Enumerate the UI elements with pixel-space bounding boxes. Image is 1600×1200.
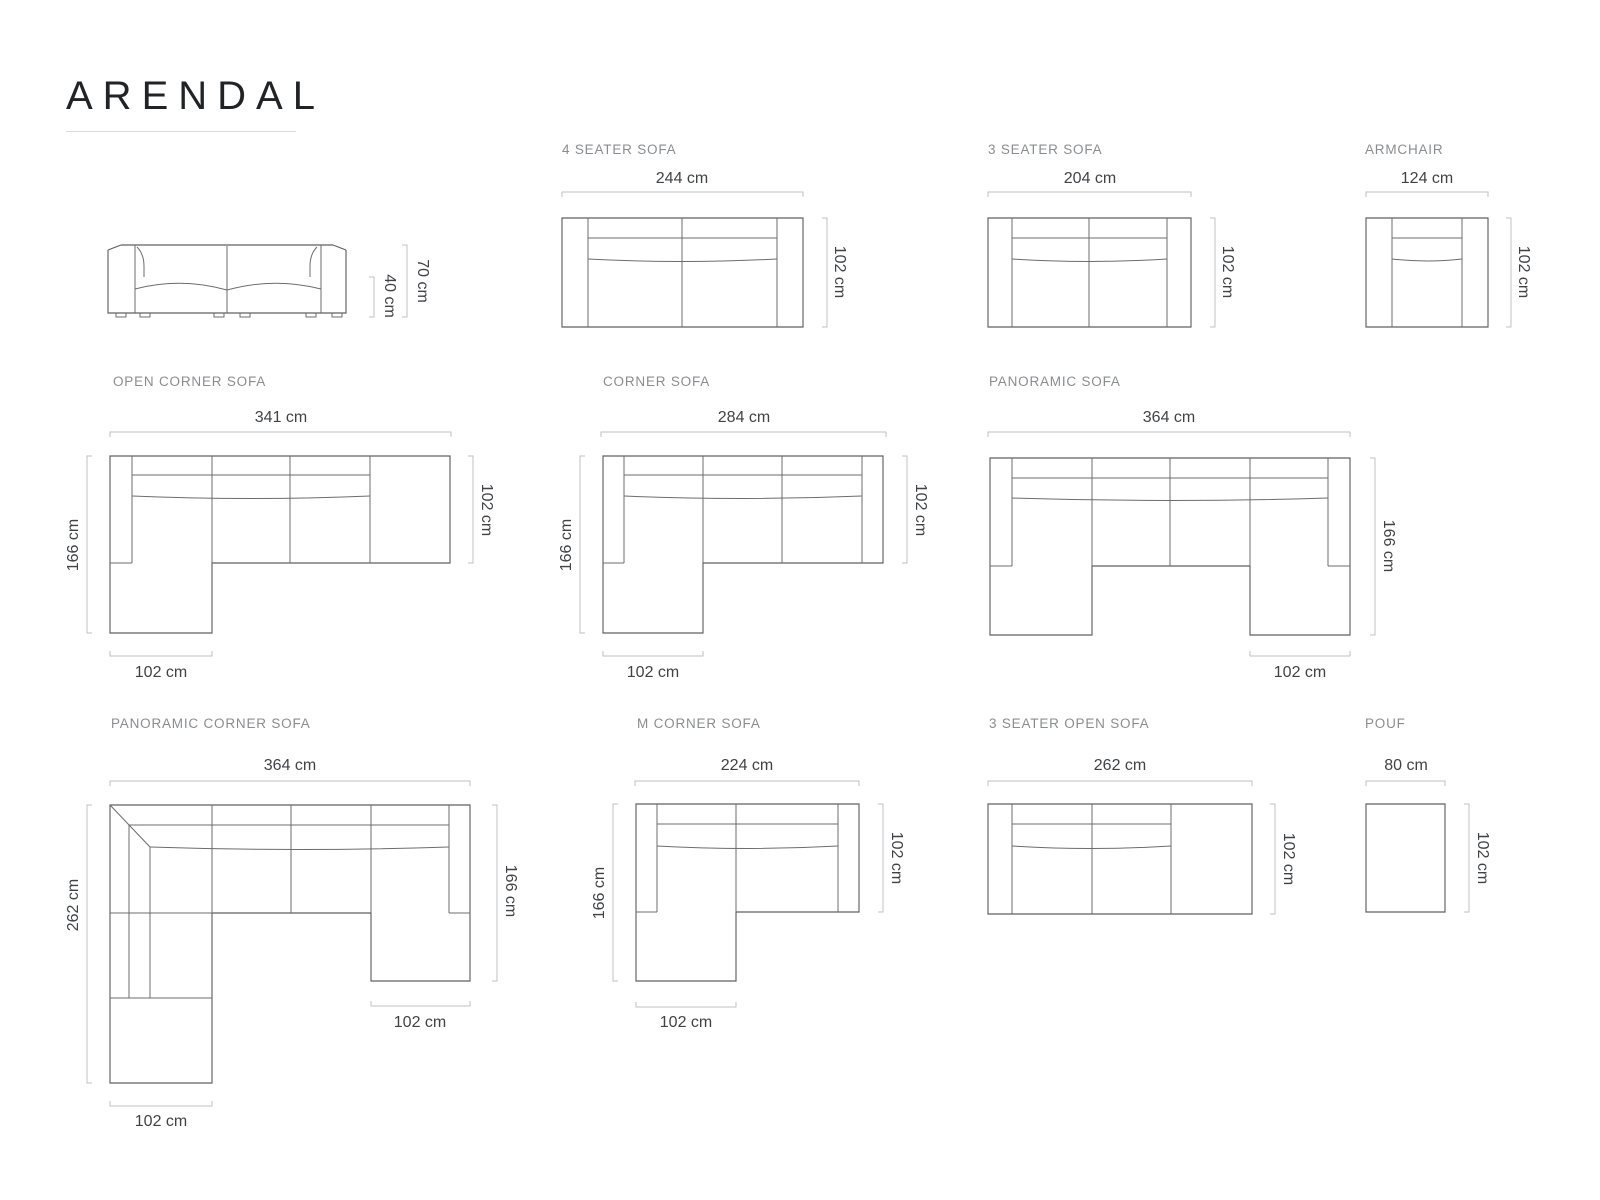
corner-depth: 102 cm: [911, 484, 929, 536]
m-corner-label: M CORNER SOFA: [637, 716, 761, 731]
three-seater-open-label: 3 SEATER OPEN SOFA: [989, 716, 1149, 731]
m-corner-chaise-width: 102 cm: [660, 1014, 712, 1032]
armchair-depth: 102 cm: [1514, 246, 1532, 298]
m-corner-depth: 102 cm: [887, 832, 905, 884]
panoramic-corner-chaise-bottom: 102 cm: [135, 1113, 187, 1131]
three-seater-depth: 102 cm: [1218, 246, 1236, 298]
corner-label: CORNER SOFA: [603, 374, 710, 389]
panoramic-corner-right-length: 166 cm: [501, 865, 519, 917]
side-view-seat-height: 40 cm: [380, 274, 398, 318]
four-seater-depth: 102 cm: [830, 246, 848, 298]
open-corner-width: 341 cm: [255, 409, 307, 427]
armchair-drawing: [1366, 192, 1511, 327]
panoramic-label: PANORAMIC SOFA: [989, 374, 1121, 389]
open-corner-length: 166 cm: [65, 519, 83, 571]
open-corner-drawing: [87, 432, 473, 656]
armchair-width: 124 cm: [1401, 170, 1453, 188]
m-corner-drawing: [613, 781, 883, 1007]
panoramic-corner-left-length: 262 cm: [65, 879, 83, 931]
panoramic-corner-chaise-right: 102 cm: [394, 1014, 446, 1032]
four-seater-label: 4 SEATER SOFA: [562, 142, 676, 157]
three-seater-open-depth: 102 cm: [1279, 833, 1297, 885]
m-corner-width: 224 cm: [721, 757, 773, 775]
m-corner-length: 166 cm: [591, 867, 609, 919]
corner-chaise-width: 102 cm: [627, 664, 679, 682]
four-seater-drawing: [562, 192, 827, 327]
sofa-front-elevation-drawing: [108, 245, 407, 317]
open-corner-label: OPEN CORNER SOFA: [113, 374, 266, 389]
diagram-linework: [0, 0, 1600, 1200]
panoramic-length: 166 cm: [1379, 520, 1397, 572]
panoramic-corner-label: PANORAMIC CORNER SOFA: [111, 716, 311, 731]
panoramic-chaise-width: 102 cm: [1274, 664, 1326, 682]
four-seater-width: 244 cm: [656, 170, 708, 188]
side-view-total-height: 70 cm: [413, 259, 431, 303]
corner-length: 166 cm: [558, 519, 576, 571]
panoramic-corner-width: 364 cm: [264, 757, 316, 775]
corner-drawing: [580, 432, 907, 656]
panoramic-corner-drawing: [87, 781, 497, 1106]
three-seater-label: 3 SEATER SOFA: [988, 142, 1102, 157]
panoramic-width: 364 cm: [1143, 409, 1195, 427]
panoramic-drawing: [988, 432, 1375, 656]
pouf-label: POUF: [1365, 716, 1406, 731]
three-seater-width: 204 cm: [1064, 170, 1116, 188]
pouf-width: 80 cm: [1384, 757, 1428, 775]
dimension-sheet: ARENDAL: [0, 0, 1600, 1200]
pouf-drawing: [1366, 781, 1469, 912]
corner-width: 284 cm: [718, 409, 770, 427]
three-seater-drawing: [988, 192, 1215, 327]
pouf-depth: 102 cm: [1473, 832, 1491, 884]
armchair-label: ARMCHAIR: [1365, 142, 1443, 157]
open-corner-chaise-width: 102 cm: [135, 664, 187, 682]
open-corner-depth: 102 cm: [477, 484, 495, 536]
three-seater-open-drawing: [988, 781, 1275, 914]
three-seater-open-width: 262 cm: [1094, 757, 1146, 775]
